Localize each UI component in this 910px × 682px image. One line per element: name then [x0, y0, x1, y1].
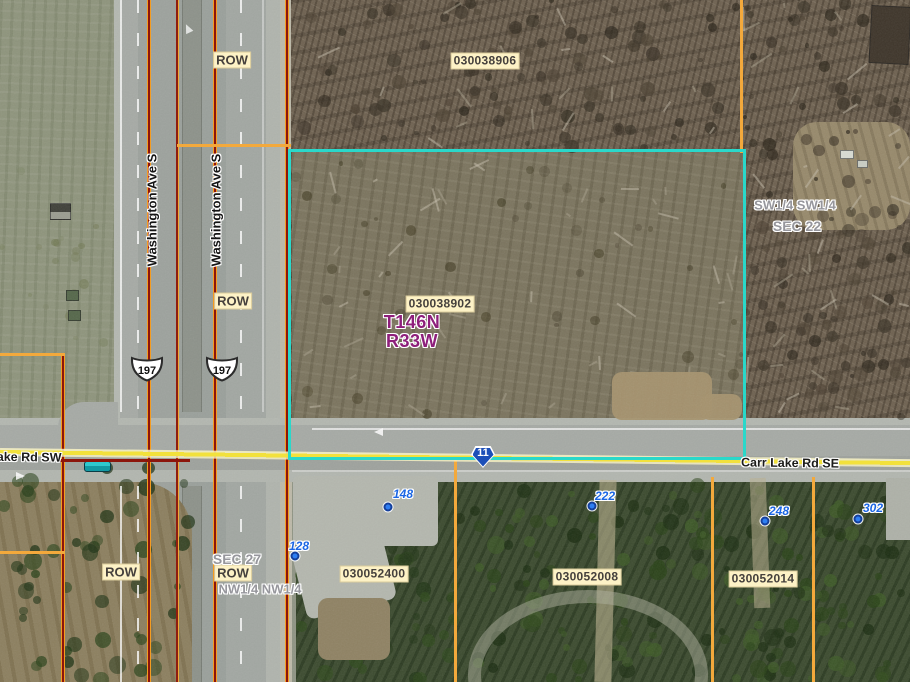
parcel-id-label[interactable]: 030052008	[553, 569, 622, 586]
address-label: 222	[595, 489, 615, 503]
address-label: 148	[393, 487, 413, 501]
range-line: R33W	[384, 332, 441, 351]
address-label: 248	[769, 504, 789, 518]
us-route-shield: 197	[129, 354, 165, 382]
svg-text:197: 197	[138, 365, 156, 377]
township-range-label: T146N R33W	[384, 313, 441, 351]
address-point[interactable]	[854, 515, 863, 524]
address-label: 302	[863, 501, 883, 515]
street-name-label: Carr Lake Rd SE	[741, 455, 839, 470]
row-label: ROW	[214, 565, 252, 582]
parcel-id-label[interactable]: 030052400	[340, 566, 409, 583]
county-road-number: 11	[471, 447, 495, 459]
row-label: ROW	[214, 293, 252, 310]
street-name-label: Washington Ave S	[209, 154, 224, 267]
row-label: ROW	[213, 52, 251, 69]
quarter-section-label: NW1/4 NW1/4	[218, 582, 301, 597]
address-point[interactable]	[384, 503, 393, 512]
section-number-label: SEC 22	[773, 218, 821, 234]
street-name-label: Washington Ave S	[145, 154, 160, 267]
address-point[interactable]	[588, 502, 597, 511]
address-label: 128	[289, 539, 309, 553]
parcel-id-label[interactable]: 030038906	[451, 53, 520, 70]
svg-text:197: 197	[213, 365, 231, 377]
address-point[interactable]	[291, 552, 300, 561]
parcel-id-label[interactable]: 030052014	[729, 571, 798, 588]
township-line: T146N	[384, 313, 441, 332]
us-route-shield: 197	[204, 354, 240, 382]
section-number-label: SEC 27	[213, 551, 261, 567]
address-point[interactable]	[761, 517, 770, 526]
gis-map-canvas[interactable]: 0300389060300389020300524000300520080300…	[0, 0, 910, 682]
street-name-label: Carr Lake Rd SW	[0, 449, 62, 464]
quarter-section-label: SW1/4 SW1/4	[754, 198, 836, 213]
row-label: ROW	[102, 564, 140, 581]
parcel-id-label[interactable]: 030038902	[406, 296, 475, 313]
